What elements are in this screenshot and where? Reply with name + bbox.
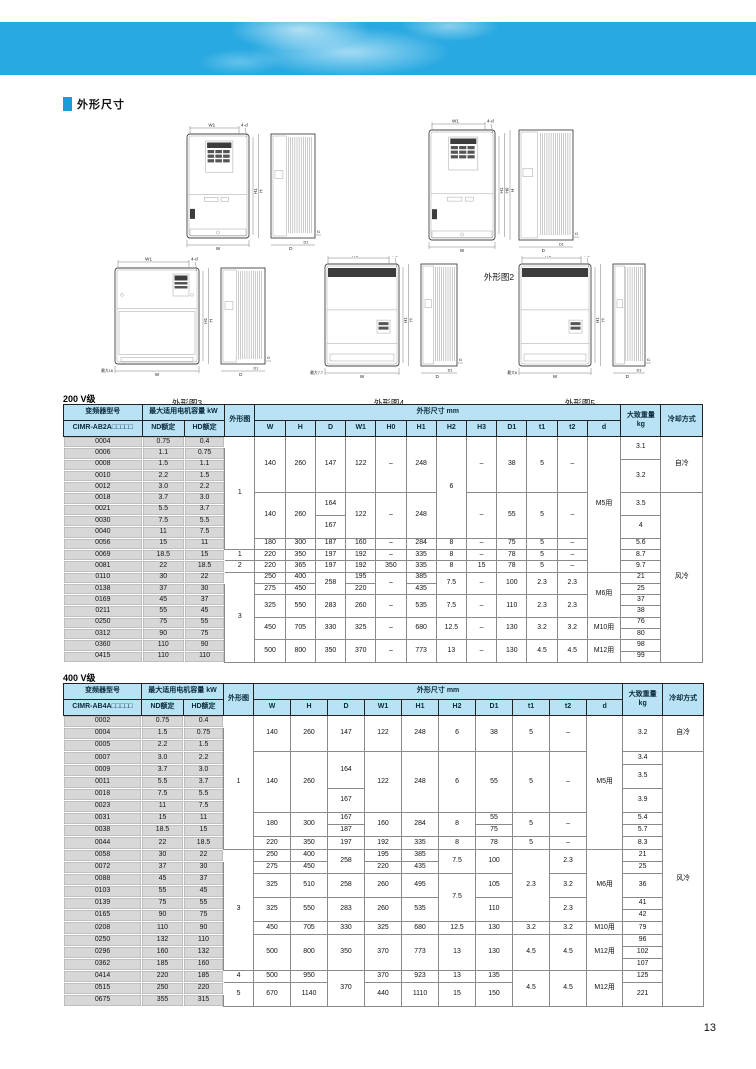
svg-text:W: W: [216, 246, 221, 251]
table-cell: 7.5: [439, 873, 476, 922]
table-cell: 8.3: [623, 837, 663, 849]
table-row: CIMR-AB4A□□□□□ND额定HD额定WHDW1H1H2D1t1t2d: [64, 700, 704, 716]
table-cell: 0.75: [142, 716, 184, 728]
table-cell: 450: [291, 861, 328, 873]
table-cell: 192: [346, 561, 376, 572]
table-cell: –: [557, 561, 587, 572]
table-cell: –: [466, 493, 496, 538]
table-cell: –: [466, 538, 496, 549]
table-cell: 45: [142, 595, 184, 606]
table-cell: 8: [436, 538, 466, 549]
table-cell: –: [376, 617, 406, 640]
table-cell: 2.3: [550, 849, 587, 873]
table-cell: 370: [346, 640, 376, 663]
table-cell: 38: [497, 437, 527, 493]
table-cell: 75: [142, 898, 184, 910]
table-cell: 30: [142, 849, 184, 861]
table-cell: 9.7: [621, 561, 661, 572]
table-cell: 5: [224, 983, 254, 1007]
table-cell: 140: [255, 493, 285, 538]
table-cell: 130: [497, 617, 527, 640]
table-cell: 122: [365, 716, 402, 752]
header-cell: d: [587, 421, 620, 437]
table-cell: 22: [184, 849, 224, 861]
table-cell: 260: [365, 898, 402, 922]
header-cell: D: [315, 421, 345, 437]
svg-text:4-d: 4-d: [583, 256, 590, 258]
table-cell: 55: [476, 752, 513, 813]
table-cell: 260: [285, 493, 315, 538]
header-cell: D: [328, 700, 365, 716]
table-cell: 110: [476, 898, 513, 922]
header-cell: H: [285, 421, 315, 437]
table-row: 011030223250400258195–3857.5–1002.32.3M6…: [64, 572, 703, 583]
table-cell: 0005: [64, 740, 142, 752]
table-cell: 55: [142, 885, 184, 897]
table-cell: 78: [476, 837, 513, 849]
table-cell: 8: [439, 813, 476, 837]
table-cell: 773: [406, 640, 436, 663]
table-cell: 0362: [64, 958, 142, 970]
table-cell: –: [466, 549, 496, 560]
table-cell: 670: [254, 983, 291, 1007]
table-cell: 180: [255, 538, 285, 549]
table-cell: 0018: [64, 493, 143, 504]
table-cell: 220: [255, 561, 285, 572]
table-cell: 187: [328, 825, 365, 837]
header-cell: t2: [550, 700, 587, 716]
table-cell: 160: [346, 538, 376, 549]
svg-text:D1: D1: [254, 367, 259, 371]
table-cell: 0414: [64, 970, 142, 982]
table-cell: 0006: [64, 448, 143, 459]
section-title: 外形尺寸: [63, 96, 125, 112]
figure-3: W14-dH1HWDD1t1最大16外形图3: [99, 256, 275, 409]
table-cell: 0056: [64, 538, 143, 549]
header-cell: HD额定: [184, 700, 224, 716]
table-cell: –: [550, 716, 587, 752]
table-cell: 0010: [64, 470, 143, 481]
table-cell: 248: [406, 493, 436, 538]
svg-text:D1: D1: [304, 241, 309, 245]
table-cell: 100: [497, 572, 527, 595]
table-cell: 435: [406, 583, 436, 594]
table-cell: 2.2: [142, 740, 184, 752]
table-cell: 167: [328, 813, 365, 825]
figure-row-2: W14-dH1HWDD1t1最大16外形图3W14-dH1HWDD1t1最大7.…: [0, 256, 756, 409]
table-cell: 4.5: [550, 934, 587, 970]
table-cell: 12.5: [436, 617, 466, 640]
table-cell: 5: [527, 538, 557, 549]
table-cell: 185: [184, 970, 224, 982]
table-cell: 105: [476, 873, 513, 897]
table-cell: 1.1: [142, 448, 184, 459]
header-cell: 最大适用电机容量 kW: [142, 684, 224, 700]
header-cell: W: [254, 700, 291, 716]
table-cell: 4: [224, 970, 254, 982]
table-cell: 132: [184, 946, 224, 958]
table-cell: 350: [285, 549, 315, 560]
table-cell: 2.3: [513, 849, 550, 922]
table-cell: 110: [142, 640, 184, 651]
table-cell: 5: [527, 493, 557, 538]
table-cell: 130: [476, 934, 513, 970]
table-cell: 5: [513, 837, 550, 849]
table-cell: 260: [291, 716, 328, 752]
header-cell: HD额定: [184, 421, 224, 437]
table-cell: 125: [623, 970, 663, 982]
table-cell: 0004: [64, 437, 143, 448]
svg-text:H: H: [601, 318, 606, 321]
table-cell: 283: [315, 595, 345, 618]
table-cell: 0.75: [184, 728, 224, 740]
table-cell: 13: [439, 970, 476, 982]
header-cell: t1: [513, 700, 550, 716]
table-cell: –: [376, 493, 406, 538]
table-cell: 1140: [291, 983, 328, 1007]
table-cell: 0002: [64, 716, 142, 728]
table-cell: 0031: [64, 813, 142, 825]
table-cell: 0030: [64, 516, 143, 527]
table-cell: 3.0: [184, 493, 224, 504]
header-cell: t1: [527, 421, 557, 437]
table-cell: 535: [402, 898, 439, 922]
table-cell: 22: [142, 561, 184, 572]
table-cell: 221: [623, 983, 663, 1007]
table-cell: 275: [255, 583, 285, 594]
table-cell: 96: [623, 934, 663, 946]
table-cell: 0103: [64, 885, 142, 897]
table-cell: 3.5: [621, 493, 661, 516]
table-cell: 0.4: [184, 437, 224, 448]
table-cell: –: [376, 538, 406, 549]
table-cell: 78: [497, 561, 527, 572]
table-cell: 167: [328, 788, 365, 812]
svg-text:W1: W1: [452, 119, 459, 124]
table-cell: 55: [497, 493, 527, 538]
table-cell: 2.2: [142, 470, 184, 481]
table-cell: 450: [285, 583, 315, 594]
table-cell: 248: [406, 437, 436, 493]
table-cell: 3.0: [142, 752, 184, 764]
table-cell: 0.75: [184, 448, 224, 459]
table-cell: 0.75: [142, 437, 184, 448]
table-cell: 0675: [64, 995, 142, 1007]
table-cell: 260: [365, 873, 402, 897]
svg-text:W: W: [155, 372, 160, 377]
table-cell: 284: [406, 538, 436, 549]
svg-text:H: H: [409, 318, 414, 321]
table-cell: 3.5: [623, 764, 663, 788]
table-cell: 385: [402, 849, 439, 861]
table-cell: 0312: [64, 629, 143, 640]
svg-text:4-d: 4-d: [391, 256, 398, 258]
table-cell: 15: [466, 561, 496, 572]
table-row: 00020.750.411402601471222486385–M5用3.2自冷: [64, 716, 704, 728]
table-cell: 250: [255, 572, 285, 583]
header-cell: W1: [365, 700, 402, 716]
table-cell: 147: [328, 716, 365, 752]
table-cell: 160: [365, 813, 402, 837]
table-cell: 192: [365, 837, 402, 849]
table-cell: 2.2: [184, 482, 224, 493]
table-cell: 75: [142, 617, 184, 628]
table-row: 00040.750.41140260147122–2486–385–M5用3.1…: [64, 437, 703, 448]
table-cell: 90: [184, 922, 224, 934]
table-cell: 315: [184, 995, 224, 1007]
table-cell: 355: [142, 995, 184, 1007]
table-cell: 7.5: [142, 788, 184, 800]
svg-text:D: D: [542, 248, 546, 253]
table-cell: 1: [225, 437, 255, 550]
header-cell: 变频器型号: [64, 684, 142, 700]
table-cell: 75: [184, 910, 224, 922]
table-cell: 7.5: [142, 516, 184, 527]
table-cell: –: [376, 437, 406, 493]
table-cell: 11: [142, 527, 184, 538]
table-cell: 3.2: [621, 459, 661, 493]
table-cell: –: [376, 549, 406, 560]
table-cell: 370: [365, 934, 402, 970]
table-cell: 330: [328, 922, 365, 934]
table-cell: 140: [254, 716, 291, 752]
svg-text:t1: t1: [267, 356, 270, 360]
header-cell: H2: [436, 421, 466, 437]
table-cell: 55: [184, 617, 224, 628]
figure-2-drawing: W14-dH1H0HWDD1t1: [411, 118, 587, 268]
header-cell: CIMR-AB2A□□□□□: [64, 421, 143, 437]
header-cell: W: [255, 421, 285, 437]
table-cell: 45: [142, 873, 184, 885]
table-cell: M5用: [587, 716, 623, 850]
svg-text:t1: t1: [317, 230, 320, 234]
table-cell: 90: [184, 640, 224, 651]
table-cell: 0415: [64, 651, 143, 662]
table-cell: 3: [225, 572, 255, 662]
table-cell: 13: [439, 934, 476, 970]
table-cell: 0165: [64, 910, 142, 922]
table-cell: 1.5: [184, 470, 224, 481]
figure-1-drawing: W14-dH1HWDD1t1: [169, 118, 327, 268]
header-cell: H: [291, 700, 328, 716]
table-cell: 15: [142, 538, 184, 549]
table-cell: M10用: [587, 617, 620, 640]
table-cell: 25: [621, 583, 661, 594]
table-cell: –: [557, 437, 587, 493]
header-cell: 最大适用电机容量 kW: [142, 405, 225, 421]
table-cell: 197: [315, 561, 345, 572]
table-cell: 0211: [64, 606, 143, 617]
table-cell: 0515: [64, 983, 142, 995]
table-cell: 79: [623, 922, 663, 934]
header-cell: ND额定: [142, 700, 184, 716]
table-cell: 5: [527, 549, 557, 560]
table-cell: 0023: [64, 800, 142, 812]
table-cell: 3.2: [550, 873, 587, 897]
header-cell: 冷却方式: [661, 405, 703, 437]
table-cell: 3.2: [527, 617, 557, 640]
table-cell: 0296: [64, 946, 142, 958]
table-cell: 3.9: [623, 788, 663, 812]
table-cell: 3.7: [184, 776, 224, 788]
table-cell: 2.3: [527, 595, 557, 618]
table-cell: 0138: [64, 583, 143, 594]
table-cell: 80: [621, 629, 661, 640]
table-cell: 8.7: [621, 549, 661, 560]
table-cell: 3.0: [184, 764, 224, 776]
table-cell: 300: [285, 538, 315, 549]
table-cell: 248: [402, 716, 439, 752]
table-cell: 1.5: [142, 459, 184, 470]
svg-text:D: D: [239, 372, 243, 377]
table-cell: 98: [621, 640, 661, 651]
table-cell: 0009: [64, 764, 142, 776]
table-cell: 1.5: [142, 728, 184, 740]
table-cell: 275: [254, 861, 291, 873]
table-cell: 5: [513, 813, 550, 837]
svg-text:H: H: [209, 319, 214, 322]
table-cell: 2.3: [527, 572, 557, 595]
table-cell: 25: [623, 861, 663, 873]
table-cell: 3.2: [623, 716, 663, 752]
table-cell: 15: [184, 825, 224, 837]
svg-text:W1: W1: [208, 123, 215, 128]
figure-3-drawing: W14-dH1HWDD1t1最大16: [99, 256, 275, 394]
table-cell: 22: [184, 572, 224, 583]
table-cell: 350: [376, 561, 406, 572]
table-cell: 450: [254, 922, 291, 934]
catalog-page: 外形尺寸 W14-dH1HWDD1t1外形图1W14-dH1H0HWDD1t1外…: [0, 0, 756, 1069]
table-cell: 11: [184, 813, 224, 825]
table-cell: 3.4: [623, 752, 663, 764]
table-cell: 140: [255, 437, 285, 493]
table-cell: 550: [291, 898, 328, 922]
table-cell: 385: [406, 572, 436, 583]
table-cell: 370: [365, 970, 402, 982]
table-cell: M12用: [587, 640, 620, 663]
table-row: 02507555450705330325–68012.5–1303.23.2M1…: [64, 617, 703, 628]
table-cell: 11: [142, 800, 184, 812]
table-cell: 220: [346, 583, 376, 594]
table-cell: 435: [402, 861, 439, 873]
table-cell: M5用: [587, 437, 620, 573]
svg-text:H1: H1: [595, 317, 600, 323]
figure-5-drawing: W14-dH1HWDD1t1最大8: [503, 256, 657, 394]
table-cell: 5.7: [623, 825, 663, 837]
table-cell: 42: [623, 910, 663, 922]
table-cell: –: [376, 640, 406, 663]
table-cell: 220: [142, 970, 184, 982]
table-cell: 3.1: [621, 437, 661, 460]
table-cell: 680: [402, 922, 439, 934]
table-cell: –: [550, 837, 587, 849]
table-cell: 2.3: [550, 898, 587, 922]
table-cell: 7.5: [439, 849, 476, 873]
table-cell: 335: [406, 561, 436, 572]
table-row: 0250132110500800350370773131304.54.5M12用…: [64, 934, 704, 946]
table-cell: 130: [497, 640, 527, 663]
table-cell: 15: [439, 983, 476, 1007]
table-cell: 0.4: [184, 716, 224, 728]
table-cell: 4.5: [550, 970, 587, 1006]
table-cell: 30: [184, 861, 224, 873]
header-cell: 大致重量 kg: [621, 405, 661, 437]
header-cell: H2: [439, 700, 476, 716]
svg-text:W1: W1: [351, 256, 358, 258]
table-cell: 75: [497, 538, 527, 549]
svg-text:最大16: 最大16: [101, 368, 113, 373]
table-cell: 335: [402, 837, 439, 849]
table-cell: 15: [142, 813, 184, 825]
table-cell: 150: [476, 983, 513, 1007]
table-cell: 41: [623, 898, 663, 910]
table-cell: 38: [621, 606, 661, 617]
svg-text:D: D: [436, 374, 440, 379]
header-cell: d: [587, 700, 623, 716]
svg-text:W1: W1: [145, 257, 152, 262]
table-cell: 90: [142, 629, 184, 640]
table-cell: 99: [621, 651, 661, 662]
table-cell: 195: [346, 572, 376, 583]
figure-4-drawing: W14-dH1HWDD1t1最大7.7: [309, 256, 469, 394]
svg-text:最大7.7: 最大7.7: [310, 370, 323, 375]
table-cell: –: [550, 813, 587, 837]
table-cell: 0208: [64, 922, 142, 934]
table-cell: 0081: [64, 561, 143, 572]
table-cell: 197: [328, 837, 365, 849]
table-cell: 164: [328, 752, 365, 788]
header-cell: 外形尺寸 mm: [254, 684, 623, 700]
table-cell: M6用: [587, 572, 620, 617]
header-band: [0, 22, 756, 75]
table-cell: 18.5: [184, 837, 224, 849]
table-cell: 160: [184, 958, 224, 970]
table-cell: 3.2: [550, 922, 587, 934]
table-cell: 55: [476, 813, 513, 825]
table-cell: 7.5: [184, 527, 224, 538]
table-cell: 250: [142, 983, 184, 995]
table-cell: 135: [476, 970, 513, 982]
table-cell: 350: [315, 640, 345, 663]
svg-text:H1: H1: [203, 317, 208, 323]
table-cell: 37: [621, 595, 661, 606]
header-cell: W1: [346, 421, 376, 437]
svg-text:D: D: [626, 374, 630, 379]
svg-text:W: W: [360, 374, 365, 379]
table-cell: 37: [142, 583, 184, 594]
table-cell: 185: [142, 958, 184, 970]
figure-4: W14-dH1HWDD1t1最大7.7外形图4: [309, 256, 469, 409]
table-cell: 5: [527, 561, 557, 572]
table-cell: 400: [291, 849, 328, 861]
table-cell: 3.2: [513, 922, 550, 934]
table-cell: 0069: [64, 549, 143, 560]
table-cell: M12用: [587, 934, 623, 970]
table-cell: 950: [291, 970, 328, 982]
table-cell: 5.5: [184, 516, 224, 527]
table-cell: –: [557, 538, 587, 549]
table-cell: 0040: [64, 527, 143, 538]
table-row: 0058302232504002581953857.51002.32.3M6用2…: [64, 849, 704, 861]
table-cell: 1.1: [184, 459, 224, 470]
table-cell: –: [466, 572, 496, 595]
table-cell: 4.5: [527, 640, 557, 663]
table-cell: 400: [285, 572, 315, 583]
table-cell: –: [557, 549, 587, 560]
table-cell: 122: [346, 493, 376, 538]
table-cell: 0038: [64, 825, 142, 837]
table-cell: 5: [527, 437, 557, 493]
